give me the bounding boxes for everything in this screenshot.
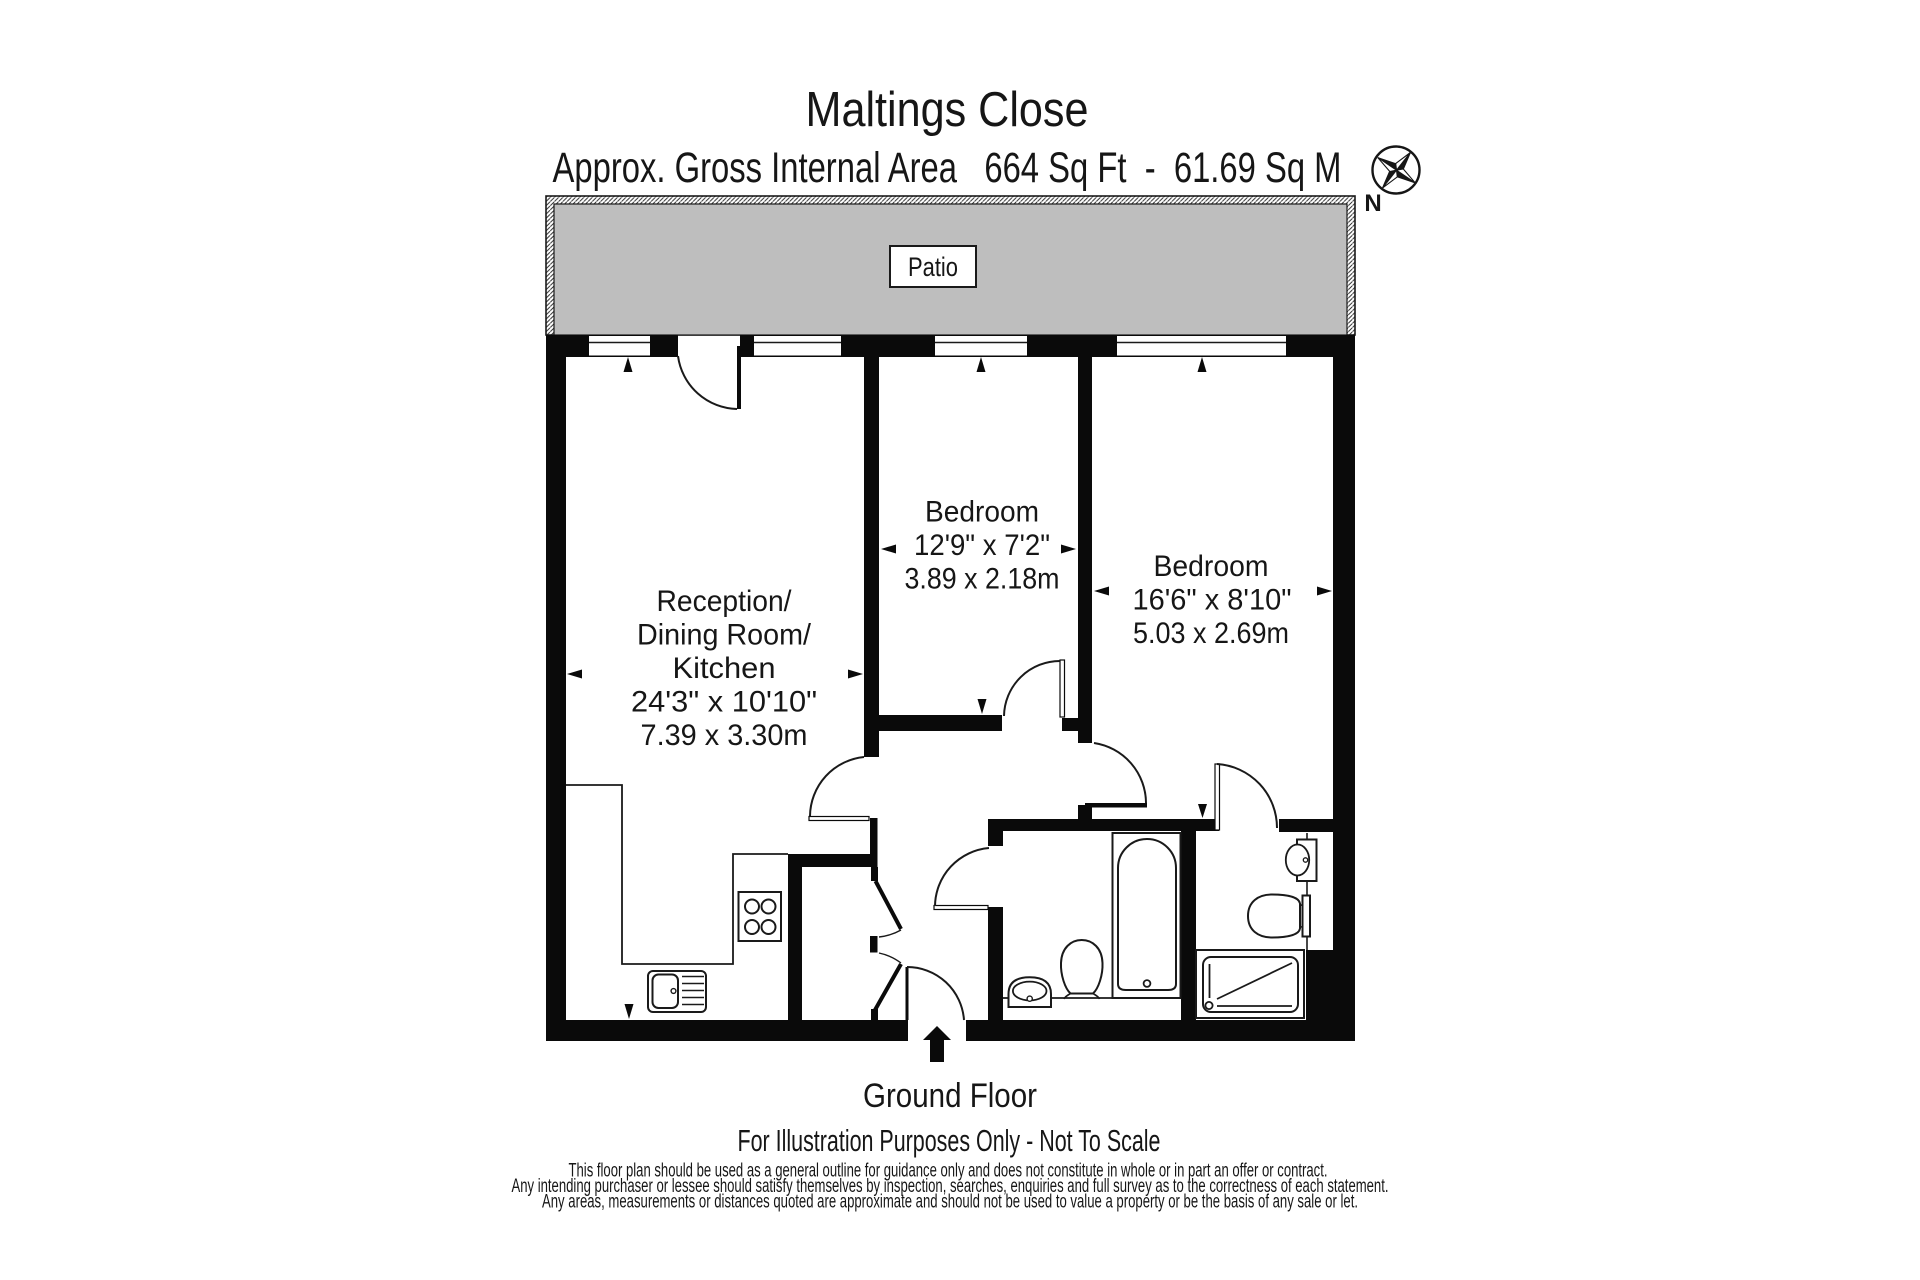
svg-text:5.03 x 2.69m: 5.03 x 2.69m [1133,617,1289,650]
svg-text:Approx. Gross Internal Area: Approx. Gross Internal Area 664 Sq Ft - … [553,144,1342,192]
svg-text:Ground Floor: Ground Floor [863,1077,1037,1115]
svg-text:N: N [1364,190,1381,217]
svg-text:Dining Room/: Dining Room/ [637,619,812,652]
svg-text:Any areas, measurements or dis: Any areas, measurements or distances quo… [542,1192,1358,1213]
svg-text:Bedroom: Bedroom [1154,550,1269,583]
svg-text:24'3" x 10'10": 24'3" x 10'10" [631,686,817,719]
svg-text:7.39 x 3.30m: 7.39 x 3.30m [641,719,808,752]
svg-text:3.89 x 2.18m: 3.89 x 2.18m [905,563,1060,596]
svg-text:For Illustration Purposes Only: For Illustration Purposes Only - Not To … [738,1123,1161,1158]
svg-text:Kitchen: Kitchen [673,652,776,685]
svg-text:Patio: Patio [908,252,958,282]
svg-text:Maltings Close: Maltings Close [806,83,1089,137]
svg-text:Reception/: Reception/ [657,585,793,618]
svg-text:Bedroom: Bedroom [925,496,1039,529]
svg-text:16'6" x 8'10": 16'6" x 8'10" [1133,584,1292,617]
svg-text:12'9" x 7'2": 12'9" x 7'2" [914,529,1050,562]
